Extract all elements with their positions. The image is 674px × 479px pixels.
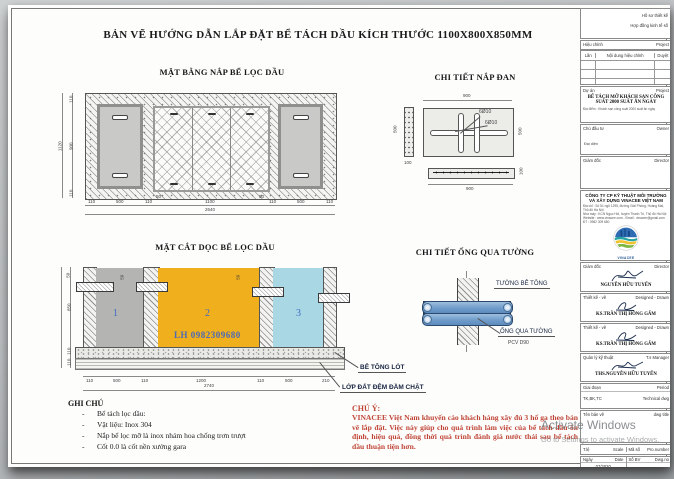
- label-pipe-size: PCV D90: [508, 341, 529, 346]
- plan-cover-right: [278, 104, 323, 189]
- tb-dwg-title-label-en: dwg title: [654, 412, 669, 417]
- plan-title: MẶT BẰNG NẮP BỂ LỌC DẦU: [72, 67, 372, 77]
- tb-sig4-label: Quản lý kỹ thuật: [583, 355, 613, 360]
- tb-stage-label: Giai đoạn: [583, 385, 601, 390]
- chamber-number: 1: [113, 308, 118, 319]
- pipe-detail-title: CHI TIẾT ỐNG QUA TƯỜNG: [375, 247, 575, 257]
- tb-document-box: Hồ sơ thiết kế Hợp đồng kinh tế số: [580, 8, 670, 39]
- tb-company-addr4: ĐT : 0982 309 680: [581, 220, 670, 224]
- dim-label: 500: [519, 127, 524, 135]
- note-item: Nắp bể lọc mỡ là inox nhám hoa chống trơ…: [68, 430, 246, 441]
- dim-label: 900: [70, 142, 75, 150]
- dimension-line: [466, 271, 467, 278]
- dim-total-label: 2740: [204, 384, 214, 389]
- tb-project-sub: Địa điểm : Khách sạn công suất 2000 suất…: [581, 106, 670, 112]
- dimension-line: [61, 267, 62, 368]
- dim-label: 1100: [205, 200, 215, 205]
- cover-handle-icon: [293, 173, 309, 178]
- tile-panel: [155, 108, 192, 190]
- lid-side-section: [404, 107, 414, 157]
- tb-sig1-label-en: Director: [654, 264, 669, 269]
- compacted-soil-layer: [75, 358, 345, 370]
- plan-tile-lid: [153, 106, 270, 192]
- lid-detail-title: CHI TIẾT NẮP ĐAN: [375, 72, 575, 82]
- tb-no-label-en: Dwg.no: [655, 457, 669, 462]
- lid-bar-section: [428, 168, 515, 179]
- dim-label: 50: [236, 275, 241, 280]
- label-concrete-wall: TƯỜNG BÊ TÔNG: [494, 281, 550, 289]
- tb-company-box: CÔNG TY CP KỸ THUẬT MÔI TRƯỜNG VÀ XÂY DỰ…: [580, 190, 670, 261]
- tb-company-name: CÔNG TY CP KỸ THUẬT MÔI TRƯỜNG VÀ XÂY DỰ…: [581, 191, 670, 204]
- dim-label: 900: [463, 94, 471, 99]
- tb-owner-rep: Đại diện: [581, 132, 670, 146]
- tb-date-row: Ngày Date 07/2020 Số BV Dwg.no: [580, 456, 670, 467]
- tb-date-label: Ngày: [583, 457, 593, 462]
- tb-no-label: Số BV: [629, 457, 641, 462]
- cover-handle-icon: [112, 115, 128, 120]
- dimension-line: [466, 345, 467, 352]
- tb-company-addr1: Địa chỉ : Số 51 ngõ 1295, đường Giải Phó…: [581, 204, 670, 212]
- tb-rev-title: Hiệu chỉnh: [583, 42, 603, 47]
- note-item: Cốt 0.0 là cốt nền xưởng gara: [68, 441, 246, 452]
- tb-signature-designer1: Thiết kế - vẽ Designed - Drawn KS.TRẦN T…: [580, 293, 670, 322]
- tb-rev-col-no: Lần: [581, 53, 596, 58]
- sheet-title: BẢN VẼ HƯỚNG DẪN LẮP ĐẶT BỂ TÁCH DẦU KÍC…: [68, 29, 568, 41]
- tb-sig3-label: Thiết kế - vẽ: [583, 325, 606, 330]
- dim-total-label: 1120: [59, 141, 64, 151]
- dim-label: 110: [269, 200, 276, 205]
- tile-panel: [192, 108, 230, 190]
- note-item: Bể tách lọc dầu:: [68, 408, 246, 419]
- dim-label: 900: [466, 187, 474, 192]
- tb-date-value: 07/2020: [581, 463, 626, 467]
- tb-owner-box: Chủ đầu tư Owner Đại diện: [580, 124, 670, 155]
- tb-code-label: Mã số: [629, 447, 640, 452]
- pipe-end: [503, 303, 512, 312]
- dim-label: 110: [69, 96, 74, 103]
- dimension-line: [428, 184, 513, 185]
- dim-label: 110: [326, 200, 333, 205]
- tb-rev-col-approve: Duyệt: [655, 53, 670, 58]
- section-wall: [323, 267, 337, 349]
- screenshot-root: { "sheet": { "title": "BẢN VẼ HƯỚNG DẪN …: [0, 0, 674, 479]
- chamber-1: [96, 268, 143, 347]
- label-pipe-through-wall: ỐNG QUA TƯỜNG: [498, 329, 555, 337]
- tb-stage-box: Giai đoạn Period TK,BK,TC Technical dwg: [580, 383, 670, 409]
- tb-doc-line2: Hợp đồng kinh tế số: [581, 18, 670, 28]
- dim-label: 500: [113, 379, 121, 384]
- tb-signature-manager: Quản lý kỹ thuật T.s Manager THS.NGUYỄN …: [580, 353, 670, 382]
- chamber-number: 3: [296, 308, 301, 319]
- tb-doc-line1: Hồ sơ thiết kế: [581, 9, 670, 18]
- tb-sig4-name: THS.NGUYỄN HỮU TUYẾN: [581, 372, 670, 377]
- section-pipe: [76, 282, 114, 292]
- note-item: Vật liệu: Inox 304: [68, 419, 246, 430]
- dim-label: 500: [394, 125, 399, 133]
- cover-handle-icon: [293, 115, 309, 120]
- tb-sig2-label: Thiết kế - vẽ: [583, 295, 606, 300]
- plan-cover-left: [97, 104, 143, 189]
- tb-sig4-label-en: T.s Manager: [646, 355, 669, 360]
- dimension-line: [85, 214, 335, 215]
- tb-director-label: Giám đốc: [583, 158, 601, 163]
- tb-owner-label-en: Owner: [657, 126, 669, 131]
- dim-label: 50: [156, 195, 161, 200]
- tb-project-label: Dự án: [583, 88, 595, 93]
- pipe-end: [423, 303, 432, 312]
- section-wall: [83, 267, 97, 349]
- signature-icon: [608, 300, 644, 312]
- dim-label: 110: [67, 359, 72, 366]
- dim-label: 50: [66, 273, 71, 278]
- tb-scale-label-en: Scale: [613, 447, 623, 452]
- pipe-sleeve: [422, 313, 513, 326]
- warning-title: CHÚ Ý:: [352, 404, 578, 413]
- dim-label: 110: [145, 200, 152, 205]
- dim-label: 110: [67, 348, 72, 355]
- tb-revision-header: Hiệu chỉnh Project: [580, 40, 670, 50]
- signature-icon: [606, 269, 646, 283]
- tb-scale-label: T.lệ: [583, 447, 590, 452]
- rebar-slot: [430, 130, 508, 136]
- notes-block: GHI CHÚ Bể tách lọc dầu: Vật liệu: Inox …: [68, 399, 246, 452]
- tb-revision-table: Lần Nội dung hiệu chỉnh Duyệt: [580, 50, 670, 85]
- tb-date-label-en: Date: [615, 457, 624, 462]
- tb-logo-caption: VINACEE: [581, 256, 670, 260]
- dimension-line: [85, 205, 335, 206]
- tb-dwg-title-label: Tên bản vẽ: [583, 412, 604, 417]
- rebar-label: 6Ø10: [479, 110, 491, 115]
- tb-scale-row: T.lệ Scale Mã số Pro.number: [580, 444, 670, 455]
- rebar-dots: [433, 171, 509, 174]
- dimension-line: [83, 376, 335, 377]
- lid-plan: [423, 108, 514, 157]
- pipe-end: [423, 315, 432, 324]
- notes-title: GHI CHÚ: [68, 399, 246, 408]
- tb-sig2-name: KS.TRẦN THỊ HỒNG GẤM: [581, 312, 670, 317]
- dimension-line: [83, 390, 335, 391]
- dim-label: 110: [257, 379, 264, 384]
- section-pipe: [136, 282, 168, 292]
- tb-sig2-label-en: Designed - Drawn: [635, 295, 669, 300]
- dim-label: 100: [520, 167, 525, 175]
- signature-icon: [606, 360, 646, 372]
- tb-project-name: BỂ TÁCH MỠ KHÁCH SẠN CÔNG SUẤT 2000 SUẤT…: [581, 94, 670, 106]
- chamber-number: 2: [205, 308, 210, 319]
- section-pipe: [252, 287, 284, 297]
- dim-label: 110: [69, 190, 74, 197]
- pipe-end: [503, 315, 512, 324]
- tb-project-box: Dự án Project BỂ TÁCH MỠ KHÁCH SẠN CÔNG …: [580, 86, 670, 123]
- phone-watermark: LH 0982309680: [174, 330, 241, 340]
- tb-project-label-en: Project: [656, 88, 669, 93]
- dim-label: 110: [141, 379, 148, 384]
- tb-stage-value: TK,BK,TC: [583, 396, 602, 401]
- tb-owner-label: Chủ đầu tư: [583, 126, 604, 131]
- vinacee-logo: VINACEE: [581, 225, 670, 260]
- vinacee-logo-icon: [613, 225, 639, 251]
- section-title: MẶT CẮT DỌC BỂ LỌC DẦU: [65, 242, 365, 252]
- dim-label: 110: [86, 379, 93, 384]
- callout-compacted-soil: LỚP ĐẤT ĐỆM ĐẦM CHẶT: [340, 384, 426, 393]
- tb-rev-col-content: Nội dung hiệu chỉnh: [596, 53, 654, 58]
- dim-label: 110: [88, 200, 95, 205]
- callout-lean-concrete: BÊ TÔNG LÓT: [358, 364, 406, 373]
- tb-director-label-en: Director: [654, 158, 669, 163]
- tb-signature-designer2: Thiết kế - vẽ Designed - Drawn KS.TRẦN T…: [580, 323, 670, 352]
- dim-label: 210: [322, 379, 330, 384]
- dim-label: 50: [259, 195, 264, 200]
- dim-label: 500: [285, 379, 293, 384]
- tb-signature-director: Giám đốc Director NGUYỄN HỮU TUYẾN: [580, 262, 670, 292]
- dim-label: 100: [404, 161, 412, 166]
- signature-icon: [608, 330, 644, 342]
- tb-sig1-name: NGUYỄN HỮU TUYẾN: [581, 283, 670, 288]
- tb-sig3-name: KS.TRẦN THỊ HỒNG GẤM: [581, 342, 670, 347]
- activate-windows-watermark-sub: Go to Settings to activate Windows.: [541, 435, 659, 444]
- activate-windows-watermark: Activate Windows: [541, 418, 636, 432]
- drawing-sheet: BẢN VẼ HƯỚNG DẪN LẮP ĐẶT BỂ TÁCH DẦU KÍC…: [8, 5, 670, 467]
- dim-label: 500: [116, 200, 124, 205]
- section-pipe: [318, 293, 350, 303]
- tb-stage-value-en: Technical dwg: [643, 396, 669, 401]
- tb-stage-label-en: Period: [657, 385, 669, 390]
- dimension-line: [423, 100, 512, 101]
- tb-sig1-label: Giám đốc: [583, 264, 601, 269]
- tb-director-empty-box: Giám đốc Director: [580, 156, 670, 189]
- dim-total-label: 2640: [205, 208, 215, 213]
- tile-panel: [230, 108, 268, 190]
- tb-rev-title-en: Project: [656, 42, 669, 47]
- rebar-label: 6Ø10: [485, 121, 497, 126]
- dim-label: 50: [120, 275, 125, 280]
- cover-handle-icon: [112, 173, 128, 178]
- tb-code-label-en: Pro.number: [647, 447, 669, 452]
- plan-drawing: [85, 93, 337, 200]
- tb-sig3-label-en: Designed - Drawn: [635, 325, 669, 330]
- dim-label: 850: [68, 303, 73, 311]
- dim-label: 500: [297, 200, 305, 205]
